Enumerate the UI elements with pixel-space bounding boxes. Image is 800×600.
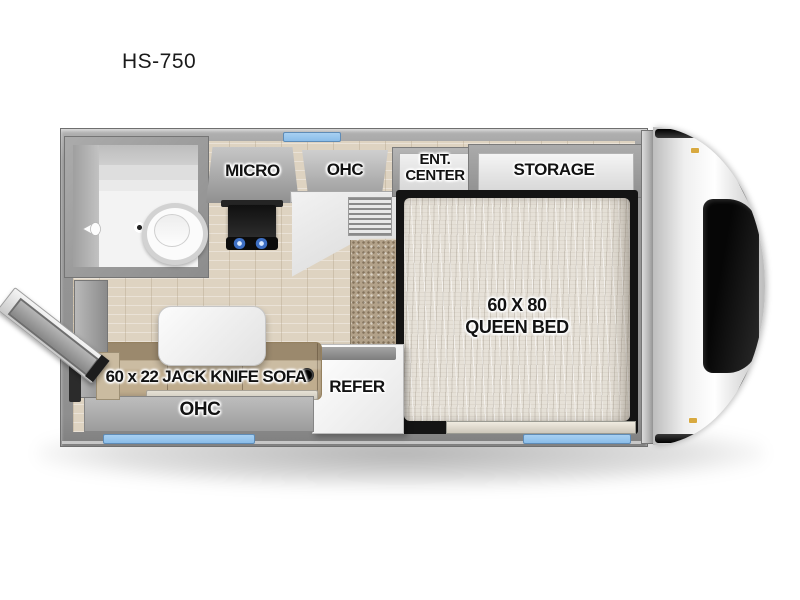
bathroom-shelf (86, 165, 198, 180)
label-ent-line2: CENTER (392, 168, 478, 184)
floorplan-scene: HS-750 (0, 0, 800, 600)
dinette-table (158, 306, 266, 366)
nose-trim-bottom (655, 434, 755, 443)
label-bed-line2: QUEEN BED (404, 317, 630, 339)
cooktop-range-icon (228, 205, 276, 239)
burner-icon (233, 238, 246, 249)
label-ohc-bottom: OHC (110, 400, 290, 420)
marker-light-icon (691, 148, 699, 153)
label-sofa: 60 x 22 JACK KNIFE SOFA (100, 368, 312, 386)
window-bottom-left (103, 434, 255, 444)
label-bed-line1: 60 X 80 (404, 295, 630, 317)
model-title: HS-750 (122, 50, 196, 74)
label-storage: STORAGE (468, 161, 640, 179)
bathroom-shelf (97, 180, 198, 191)
label-ent-line1: ENT. (392, 152, 478, 168)
shower-wall (73, 145, 99, 267)
label-micro: MICRO (206, 162, 299, 180)
front-window (703, 199, 759, 373)
burner-icon (255, 238, 268, 249)
vent-grill-icon (348, 197, 392, 236)
front-nose-cap (653, 127, 765, 445)
label-queen-bed: 60 X 80 QUEEN BED (404, 295, 630, 338)
shower-head-icon (82, 218, 102, 240)
toilet-seat (154, 214, 190, 247)
nose-trim-top (655, 129, 755, 138)
marker-light-icon (689, 418, 697, 423)
label-ent-center: ENT. CENTER (392, 152, 478, 184)
label-refer: REFER (312, 378, 402, 396)
bed-foot-tray (446, 421, 636, 434)
refrigerator-top (318, 347, 396, 360)
window-bottom-right (523, 434, 631, 444)
label-ohc-top: OHC (302, 161, 388, 179)
window-top (283, 132, 341, 142)
